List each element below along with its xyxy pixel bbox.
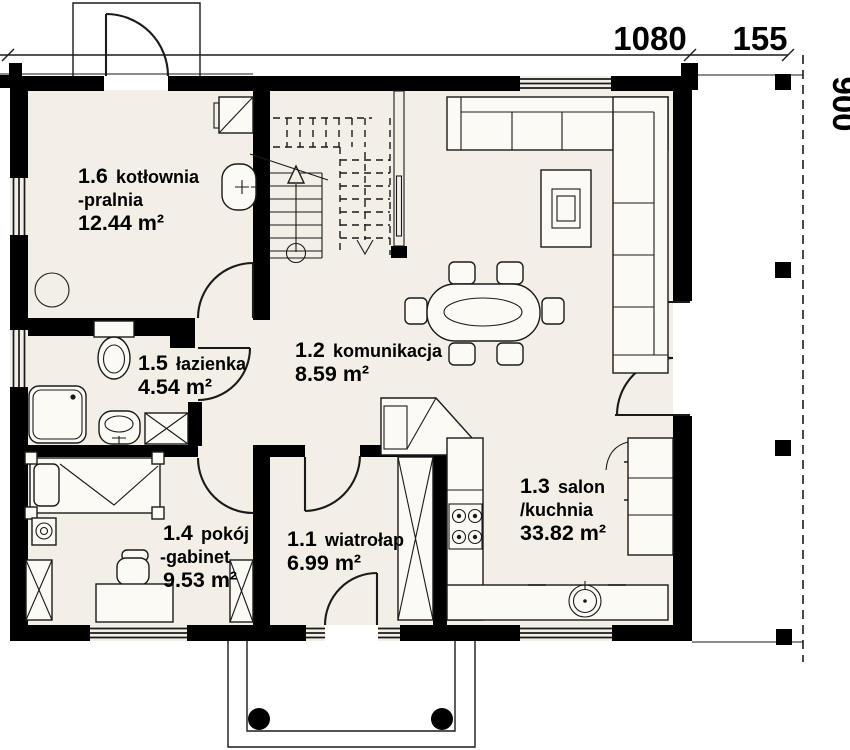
room-area: 8.59 m²	[295, 362, 369, 386]
room-id: 1.1	[287, 527, 317, 551]
office-chair	[117, 550, 149, 585]
room-area: 33.82 m²	[520, 521, 606, 545]
terrace	[775, 74, 792, 645]
wardrobe-left	[26, 560, 52, 620]
dining-chair	[405, 298, 427, 324]
dimension-side: 900	[826, 76, 850, 131]
room-id: 1.2	[295, 338, 325, 362]
room-name: wiatrołap	[324, 530, 404, 550]
room-name2: -gabinet	[160, 547, 230, 567]
window-kitchen-bottom	[520, 625, 612, 641]
room-area: 12.44 m²	[78, 211, 164, 235]
kitchen-counter-bottom	[447, 585, 668, 620]
floor-plan-svg: 1080 155 900	[0, 0, 850, 750]
bed-post	[152, 452, 164, 464]
room-id: 1.6	[78, 164, 108, 188]
room-name: kotłownia	[116, 167, 200, 187]
porch-column	[431, 708, 453, 730]
room-name: salon	[558, 477, 605, 497]
porch-bottom	[228, 641, 475, 747]
terrace-post	[775, 74, 791, 90]
bed-post	[25, 507, 37, 519]
room-name2: /kuchnia	[520, 500, 594, 520]
dining-chair	[449, 262, 475, 284]
bed	[25, 452, 164, 519]
room-name: łazienka	[176, 354, 247, 374]
washing-machine	[145, 413, 188, 444]
room-area: 6.99 m²	[287, 551, 361, 575]
window-pokoj-bottom	[90, 625, 187, 641]
nightstand	[32, 518, 56, 545]
floor-plan-page: 1080 155 900	[0, 0, 850, 750]
dimension-top-main: 1080	[613, 20, 686, 57]
porch-column	[248, 708, 270, 730]
window-sidelight-left	[306, 625, 325, 641]
utility-washbasin	[222, 164, 256, 210]
coffee-table	[541, 170, 591, 247]
dining-chair	[497, 343, 523, 365]
desk	[96, 584, 173, 622]
terrace-post	[775, 440, 791, 456]
room-id: 1.4	[163, 521, 193, 545]
bed-post	[152, 507, 164, 519]
room-area: 9.53 m²	[163, 568, 237, 592]
pillow	[34, 464, 59, 506]
room-name: pokój	[201, 524, 249, 544]
door-entrance-top	[73, 3, 200, 76]
room-area: 4.54 m²	[138, 375, 212, 399]
bathroom-sink	[99, 411, 140, 444]
terrace-post	[776, 629, 792, 645]
shower	[29, 386, 86, 443]
boiler	[214, 97, 253, 133]
dining-chair	[449, 343, 475, 365]
bed-post	[25, 452, 37, 464]
room-id: 1.3	[520, 474, 550, 498]
window-bathroom-left	[10, 330, 28, 387]
room-name2: -pralnia	[78, 190, 144, 210]
window-kotlownia-left	[10, 178, 28, 235]
terrace-post	[775, 262, 791, 278]
room-name: komunikacja	[333, 341, 443, 361]
window-salon-top	[520, 76, 611, 91]
dimension-top-terrace: 155	[732, 20, 787, 57]
room-id: 1.5	[138, 351, 168, 375]
window-sidelight-right	[378, 625, 400, 641]
dining-chair	[542, 298, 564, 324]
dining-chair	[497, 262, 523, 284]
